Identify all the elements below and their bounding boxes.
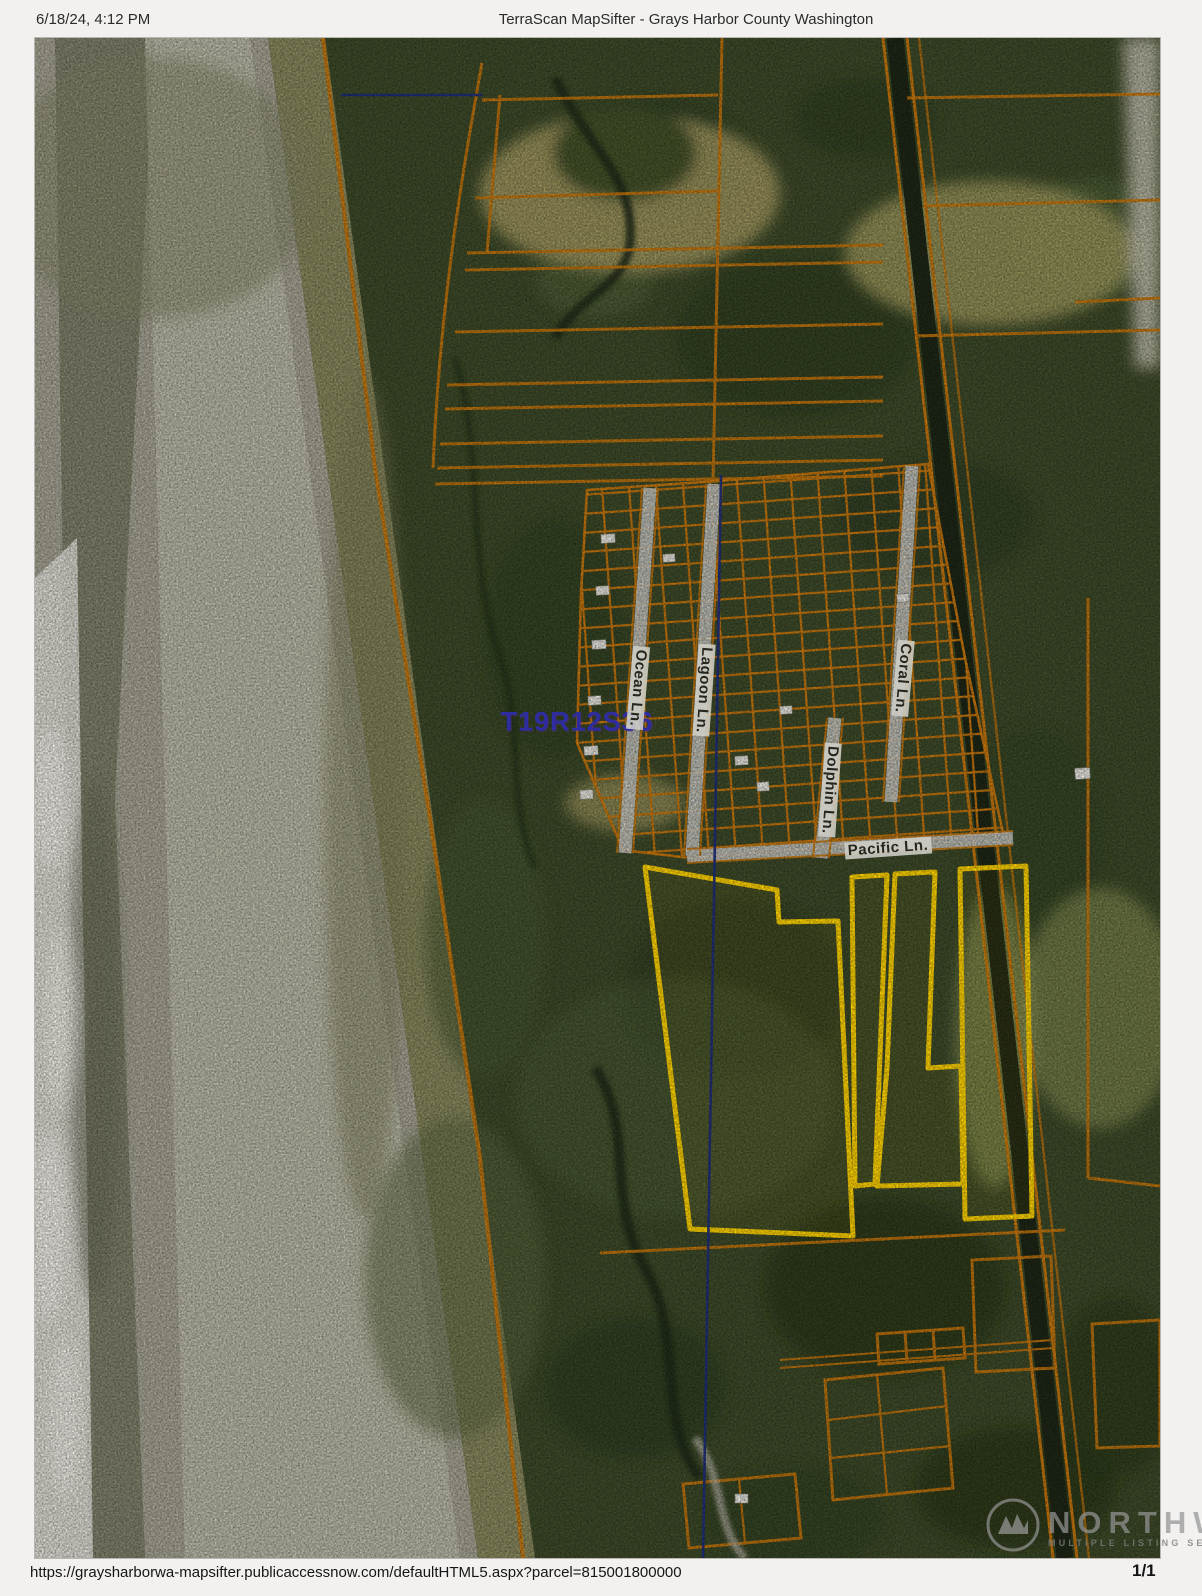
source-url: https://graysharborwa-mapsifter.publicac… [30,1564,682,1581]
printed-map-page: 6/18/24, 4:12 PM TerraScan MapSifter - G… [0,0,1202,1596]
page-number: 1/1 [1132,1561,1156,1581]
photo-grain-light [35,38,1160,1558]
page-title: TerraScan MapSifter - Grays Harbor Count… [499,11,874,28]
parcel-map [35,38,1160,1558]
print-datetime: 6/18/24, 4:12 PM [36,11,150,28]
